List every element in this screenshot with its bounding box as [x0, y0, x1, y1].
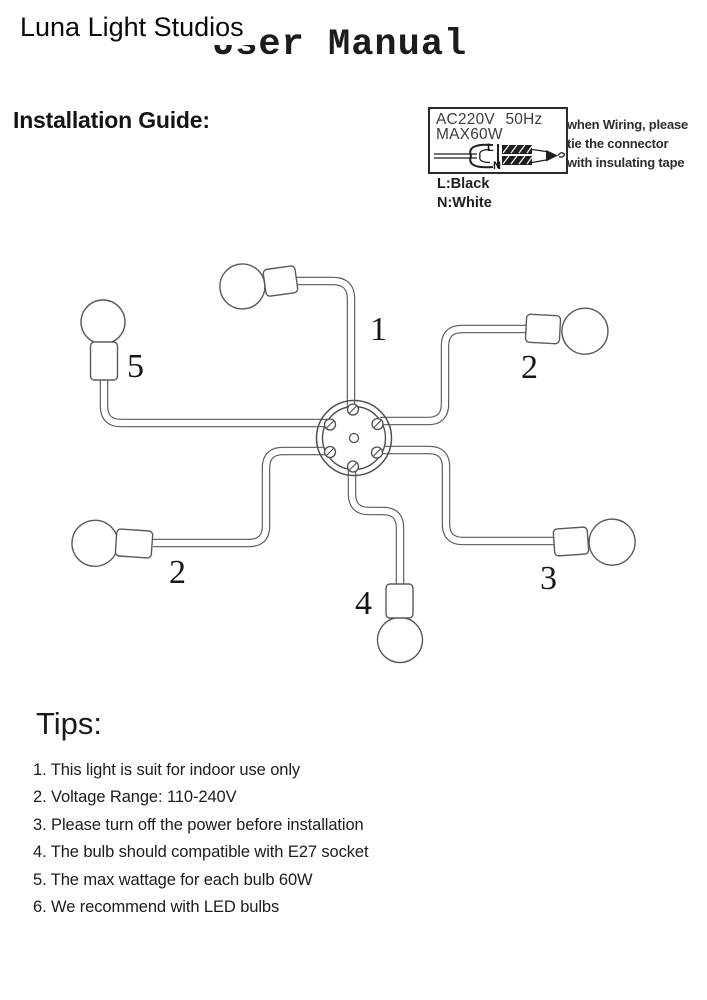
bulb-upper-right: [525, 305, 609, 355]
bulb-glass: [70, 519, 119, 568]
tip-item-5: 5. The max wattage for each bulb 60W: [33, 867, 368, 894]
bulb-socket: [115, 529, 153, 558]
wiring-note: when Wiring, please tie the connector wi…: [567, 115, 707, 172]
tip-item-2: 2. Voltage Range: 110-240V: [33, 784, 368, 811]
arm-lower-left-tube: [153, 451, 328, 543]
bulb-socket: [91, 342, 118, 380]
spec-wattage: MAX60W: [436, 128, 566, 142]
wire-n-label: N: [493, 160, 501, 172]
wire-color-legend: L:Black N:White: [437, 175, 492, 212]
wire-right-pair: [532, 150, 546, 163]
bulb-bottom: [378, 584, 423, 663]
hub-center-hole: [350, 434, 359, 443]
bulb-glass: [588, 518, 637, 567]
tips-heading: Tips:: [36, 706, 102, 742]
bulb-top: [217, 257, 300, 312]
bulb-glass: [81, 300, 125, 344]
bulb-socket: [263, 265, 298, 296]
bulb-lower-right: [553, 518, 637, 570]
arm-label-1: 1: [370, 311, 387, 348]
wire-right-tip: [546, 150, 558, 162]
bulb-glass: [217, 261, 268, 312]
tip-item-4: 4. The bulb should compatible with E27 s…: [33, 839, 368, 866]
tip-item-1: 1. This light is suit for indoor use onl…: [33, 757, 368, 784]
arm-top-tube: [296, 281, 351, 415]
bulb-socket: [525, 314, 560, 344]
installation-guide-heading: Installation Guide:: [13, 107, 210, 134]
arm-lower-right-tube: [380, 450, 556, 541]
fixture-diagram: 1 2 5 2 3 4: [0, 230, 707, 690]
arm-bottom-tube: [352, 462, 400, 586]
arm-upper-right-tube: [380, 329, 527, 421]
tip-item-3: 3. Please turn off the power before inst…: [33, 812, 368, 839]
arm-label-2-upper-right: 2: [521, 349, 538, 386]
bulb-upper-left: [81, 300, 125, 380]
tips-list: 1. This light is suit for indoor use onl…: [33, 757, 368, 921]
legend-neutral: N:White: [437, 194, 492, 213]
arm-label-5: 5: [127, 348, 144, 385]
wiring-note-line-3: with insulating tape: [567, 153, 707, 172]
wire-l-label: L: [487, 142, 494, 154]
bulb-socket: [386, 584, 413, 618]
spec-box: AC220V 50Hz MAX60W L N: [428, 107, 568, 174]
bulb-glass: [378, 618, 423, 663]
bulb-lower-left: [70, 519, 153, 570]
tip-item-6: 6. We recommend with LED bulbs: [33, 894, 368, 921]
bulb-glass: [561, 307, 609, 355]
bulb-socket: [553, 527, 589, 556]
arm-label-3: 3: [540, 560, 557, 597]
arm-label-2-lower-left: 2: [169, 554, 186, 591]
wire-end-hook: [558, 153, 565, 157]
wiring-note-line-2: tie the connector: [567, 134, 707, 153]
store-watermark: Luna Light Studios: [0, 0, 256, 45]
legend-live: L:Black: [437, 175, 492, 194]
arm-upper-left-tube: [104, 379, 328, 423]
arm-label-4: 4: [355, 585, 372, 622]
wiring-note-line-1: when Wiring, please: [567, 115, 707, 134]
canopy-hub: [317, 401, 392, 476]
wiring-connector-art: L N: [432, 141, 566, 172]
